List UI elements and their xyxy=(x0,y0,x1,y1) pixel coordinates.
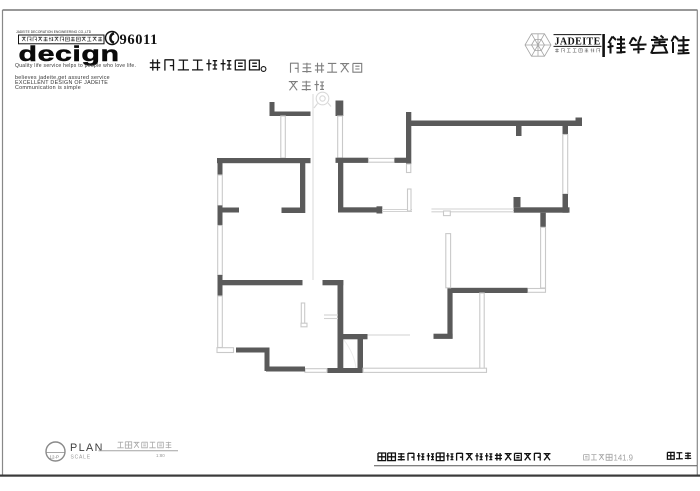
svg-text:PLAN: PLAN xyxy=(70,442,104,454)
svg-text:Communication is simple: Communication is simple xyxy=(15,85,81,91)
svg-text:1:80: 1:80 xyxy=(156,453,165,458)
svg-text:JADEITE: JADEITE xyxy=(555,36,601,47)
svg-text:SCALE: SCALE xyxy=(71,454,91,460)
svg-text:decign: decign xyxy=(19,41,120,66)
svg-text:12-P: 12-P xyxy=(50,455,60,460)
svg-text:Quality life service helps to: Quality life service helps to people who… xyxy=(15,63,136,69)
svg-text:96011: 96011 xyxy=(120,32,158,48)
svg-text:141.9: 141.9 xyxy=(614,454,634,463)
svg-text:JADEITE DECORATION ENGINEERING: JADEITE DECORATION ENGINEERING CO.,LTD xyxy=(16,30,92,34)
